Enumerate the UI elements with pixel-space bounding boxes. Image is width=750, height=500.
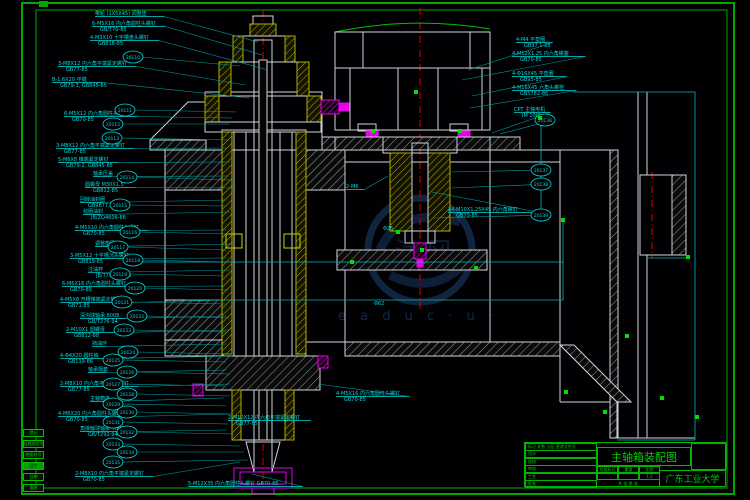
svg-text:毡圈油封: 毡圈油封 bbox=[83, 208, 103, 215]
annotation-label[interactable]: 注油杯JB/T7940.1-95 bbox=[88, 266, 230, 279]
svg-text:20129: 20129 bbox=[106, 402, 120, 408]
counter-shaft-assembly[interactable] bbox=[383, 137, 457, 267]
motor-outline[interactable] bbox=[322, 23, 520, 150]
grip-point[interactable] bbox=[458, 129, 462, 133]
svg-text:圆螺母 M30X1.5: 圆螺母 M30X1.5 bbox=[85, 181, 124, 188]
annotation-layer[interactable]: 带轮 (1X5X45) 调整垫6-M5X16 内六角圆柱头螺钉GB/T70-85… bbox=[52, 10, 699, 487]
svg-text:4-M16X45 六角头螺栓: 4-M16X45 六角头螺栓 bbox=[512, 84, 564, 91]
svg-text:GB70-85: GB70-85 bbox=[70, 287, 92, 293]
svg-text:挡油环: 挡油环 bbox=[92, 340, 107, 347]
svg-text:20113: 20113 bbox=[105, 136, 119, 142]
annotation-label[interactable]: 轴承隔套 bbox=[88, 366, 226, 373]
svg-text:4-M3X10 十字槽盘头螺钉: 4-M3X10 十字槽盘头螺钉 bbox=[90, 34, 149, 41]
part-balloon[interactable]: 20134 bbox=[117, 446, 244, 458]
grip-point[interactable] bbox=[660, 396, 664, 400]
svg-text:20110: 20110 bbox=[126, 55, 140, 61]
drawing-title: 主轴箱装配图 bbox=[597, 447, 691, 466]
svg-text:20119: 20119 bbox=[113, 272, 127, 278]
dimension-text: Φ25 bbox=[383, 226, 393, 232]
stage-header-cell: 阶段标记 bbox=[597, 466, 618, 473]
svg-text:GB70-85: GB70-85 bbox=[456, 213, 478, 219]
svg-text:20118: 20118 bbox=[126, 258, 140, 264]
annotation-label[interactable]: 2-M6 bbox=[346, 176, 388, 190]
annotation-label[interactable]: 回转油封圈GB9877.1-88 bbox=[80, 196, 226, 209]
svg-text:20114: 20114 bbox=[120, 175, 134, 181]
part-balloon[interactable]: 20115 bbox=[110, 199, 226, 211]
svg-text:4-M4 平垫圈: 4-M4 平垫圈 bbox=[516, 36, 545, 43]
svg-text:20138: 20138 bbox=[534, 182, 548, 188]
svg-text:20121: 20121 bbox=[115, 300, 129, 306]
grip-point[interactable] bbox=[396, 230, 400, 234]
svg-text:GB77-85: GB77-85 bbox=[64, 149, 86, 155]
part-balloon[interactable]: 20132 bbox=[117, 426, 234, 438]
svg-text:GB97.1-85: GB97.1-85 bbox=[524, 43, 551, 49]
svg-text:20112: 20112 bbox=[106, 122, 120, 128]
part-balloon[interactable]: 20130 bbox=[117, 406, 232, 418]
svg-text:20123: 20123 bbox=[117, 328, 131, 334]
annotation-label[interactable]: 4-M16X45 六角头螺栓GB5782-86 bbox=[470, 84, 576, 108]
svg-text:6-M5X16 内六角圆柱头螺钉: 6-M5X16 内六角圆柱头螺钉 bbox=[92, 20, 156, 27]
svg-text:GB818-85: GB818-85 bbox=[98, 41, 123, 47]
svg-text:20122: 20122 bbox=[130, 314, 144, 320]
svg-text:带轮 (1X5X45) 调整垫: 带轮 (1X5X45) 调整垫 bbox=[95, 10, 147, 17]
svg-text:2-M10X1 圆螺母: 2-M10X1 圆螺母 bbox=[66, 326, 105, 333]
svg-text:20111: 20111 bbox=[118, 108, 132, 114]
annotation-label[interactable]: 毡圈油封JB/ZQ4606-86 bbox=[83, 208, 230, 221]
svg-text:GB119-86: GB119-86 bbox=[68, 359, 93, 365]
stage-header-cell: 重量 bbox=[618, 466, 639, 473]
grip-point[interactable] bbox=[686, 255, 690, 259]
svg-text:20132: 20132 bbox=[120, 430, 134, 436]
svg-text:GB/T292-94: GB/T292-94 bbox=[88, 432, 118, 438]
part-balloon[interactable]: 20118 bbox=[123, 254, 230, 266]
grip-point[interactable] bbox=[603, 410, 607, 414]
svg-text:6-M6X16 内六角圆柱头螺钉: 6-M6X16 内六角圆柱头螺钉 bbox=[62, 280, 126, 287]
svg-text:GB812-88: GB812-88 bbox=[74, 333, 99, 339]
svg-text:20127: 20127 bbox=[106, 382, 120, 388]
margin-stamp: 旧底图总号 bbox=[23, 440, 44, 448]
sheet-count: 共 张 第 张 bbox=[597, 479, 659, 488]
svg-text:GB70-85: GB70-85 bbox=[520, 57, 542, 63]
svg-text:20137: 20137 bbox=[534, 168, 548, 174]
svg-text:20130: 20130 bbox=[120, 410, 134, 416]
organization-name: 广东工业大学 bbox=[659, 470, 726, 487]
svg-text:注油杯: 注油杯 bbox=[88, 266, 103, 273]
svg-text:20120: 20120 bbox=[128, 286, 142, 292]
svg-text:4-Φ16X45 平垫圈: 4-Φ16X45 平垫圈 bbox=[512, 70, 554, 77]
part-balloon[interactable]: 20137 bbox=[452, 164, 551, 176]
title-block-row: 批准 bbox=[525, 480, 597, 488]
grip-point[interactable] bbox=[625, 334, 629, 338]
grip-point[interactable] bbox=[538, 116, 542, 120]
annotation-label[interactable]: 4-M5X10 内六角圆柱头螺钉GB70-85 bbox=[75, 224, 226, 237]
svg-text:GB812-85: GB812-85 bbox=[93, 188, 118, 194]
svg-text:20128: 20128 bbox=[120, 392, 134, 398]
svg-text:20116: 20116 bbox=[123, 230, 137, 236]
svg-text:GB71-85: GB71-85 bbox=[68, 303, 90, 309]
svg-text:20139: 20139 bbox=[534, 213, 548, 219]
svg-text:轴承压盖: 轴承压盖 bbox=[93, 170, 113, 177]
grip-point[interactable] bbox=[371, 129, 375, 133]
svg-text:GB70-85: GB70-85 bbox=[83, 231, 105, 237]
part-balloon[interactable]: 20116 bbox=[120, 226, 228, 238]
margin-stamp: 登记 bbox=[23, 429, 44, 437]
svg-text:GB/T70-85: GB/T70-85 bbox=[100, 27, 127, 33]
margin-stamp: 描图 bbox=[23, 484, 44, 492]
annotation-label[interactable]: 角接触球轴承 7008CGB/T292-94 bbox=[80, 425, 226, 438]
svg-text:GB5782-86: GB5782-86 bbox=[520, 91, 548, 97]
svg-text:24-M10X1.25X45 内六角螺钉: 24-M10X1.25X45 内六角螺钉 bbox=[448, 206, 518, 213]
svg-text:2-M6: 2-M6 bbox=[346, 184, 358, 190]
grip-point[interactable] bbox=[414, 90, 418, 94]
annotation-label[interactable]: 4-M5X16 内六角圆柱头螺钉GB70-85 bbox=[318, 384, 410, 403]
svg-text:GB70-85: GB70-85 bbox=[72, 117, 94, 123]
svg-text:20134: 20134 bbox=[120, 450, 134, 456]
spindle-assembly[interactable] bbox=[193, 16, 349, 494]
centerlines[interactable] bbox=[263, 8, 652, 486]
svg-text:20125: 20125 bbox=[106, 358, 120, 364]
machine-column[interactable] bbox=[490, 92, 695, 438]
svg-text:4-M5X8 开槽锥端紧定螺钉: 4-M5X8 开槽锥端紧定螺钉 bbox=[60, 296, 121, 303]
svg-text:轴承隔套: 轴承隔套 bbox=[88, 366, 108, 373]
svg-text:JB/ZQ4606-86: JB/ZQ4606-86 bbox=[90, 215, 126, 221]
svg-text:回转油封圈: 回转油封圈 bbox=[80, 196, 105, 203]
svg-text:5-M6X8 锥端紧定螺钉: 5-M6X8 锥端紧定螺钉 bbox=[58, 156, 109, 163]
grip-point[interactable] bbox=[420, 248, 424, 252]
svg-text:GB/T276-94: GB/T276-94 bbox=[88, 319, 118, 325]
svg-text:B-1.6X20 平键: B-1.6X20 平键 bbox=[52, 76, 87, 83]
part-balloon[interactable]: 20119 bbox=[110, 268, 224, 280]
annotation-label[interactable]: 2-M10X12 内六角平端紧定螺钉GB77-85 bbox=[228, 414, 311, 427]
grip-point[interactable] bbox=[474, 266, 478, 270]
svg-text:GB819-85: GB819-85 bbox=[78, 259, 103, 265]
stage-header-cell: 比例 bbox=[639, 466, 660, 473]
svg-text:5-M12X35 内六角圆柱头螺钉 GB70-85: 5-M12X35 内六角圆柱头螺钉 GB70-85 bbox=[188, 480, 278, 487]
svg-text:GB77-85: GB77-85 bbox=[236, 421, 258, 427]
svg-text:GB77-85: GB77-85 bbox=[66, 67, 88, 73]
svg-text:20131: 20131 bbox=[106, 420, 120, 426]
svg-text:3-M8X12 内六角平端紧定螺钉: 3-M8X12 内六角平端紧定螺钉 bbox=[58, 60, 127, 67]
grip-point[interactable] bbox=[564, 390, 568, 394]
drawing-number-cell bbox=[691, 443, 727, 470]
svg-text:20126: 20126 bbox=[120, 370, 134, 376]
svg-text:20117: 20117 bbox=[111, 245, 125, 251]
svg-text:2-M10X12 内六角平端紧定螺钉: 2-M10X12 内六角平端紧定螺钉 bbox=[228, 414, 300, 421]
svg-text:GB70-85: GB70-85 bbox=[83, 477, 105, 483]
part-balloon[interactable]: 20120 bbox=[125, 282, 228, 294]
svg-text:GB70-85: GB70-85 bbox=[344, 397, 366, 403]
svg-text:20115: 20115 bbox=[113, 203, 127, 209]
margin-stamp: 日期 bbox=[23, 473, 44, 481]
margin-stamp: 底图总号 bbox=[23, 451, 44, 459]
grip-point[interactable] bbox=[561, 218, 565, 222]
part-balloon[interactable]: 20138 bbox=[452, 178, 551, 190]
svg-text:GB79-2, GB845-85: GB79-2, GB845-85 bbox=[66, 163, 113, 169]
svg-text:4-Φ4X20 圆柱销: 4-Φ4X20 圆柱销 bbox=[60, 352, 98, 359]
svg-text:GB79-3, GB845-85: GB79-3, GB845-85 bbox=[60, 83, 107, 89]
svg-text:GB70-85: GB70-85 bbox=[66, 417, 88, 423]
svg-text:20124: 20124 bbox=[121, 350, 135, 356]
svg-text:CPT 主轴电机: CPT 主轴电机 bbox=[514, 106, 545, 113]
annotation-label[interactable]: 3-M5X12 十字槽沉头螺钉GB819-85 bbox=[70, 252, 226, 265]
svg-text:4-M12X1.25 内六角螺塞: 4-M12X1.25 内六角螺塞 bbox=[512, 50, 569, 57]
grip-point[interactable] bbox=[695, 415, 699, 419]
annotation-label[interactable]: 2-M8X10 内六角平端紧定螺钉GB77-85 bbox=[60, 380, 230, 393]
part-balloon[interactable]: 20117 bbox=[108, 241, 226, 253]
svg-text:20135: 20135 bbox=[106, 460, 120, 466]
drawing-canvas[interactable]: 带轮 (1X5X45) 调整垫6-M5X16 内六角圆柱头螺钉GB/T70-85… bbox=[0, 0, 750, 500]
svg-text:20133: 20133 bbox=[106, 442, 120, 448]
dimension-text: Φ62 bbox=[374, 301, 384, 307]
svg-text:2-M8X10 内六角平端紧定螺钉: 2-M8X10 内六角平端紧定螺钉 bbox=[75, 470, 144, 477]
margin-stamp: 签字 bbox=[23, 462, 44, 470]
title-block: 主轴箱装配图 广东工业大学 标记 处数 分区 更改文件号设计校核审核工艺批准 阶… bbox=[524, 442, 726, 487]
revision-table: 标记 处数 分区 更改文件号设计校核审核工艺批准 bbox=[525, 443, 597, 488]
svg-text:深沟球轴承 6008: 深沟球轴承 6008 bbox=[80, 312, 119, 319]
cad-drawing-viewport: 沐风 e a d u c · u · bbox=[0, 0, 750, 500]
drawing-border-frame bbox=[22, 1, 734, 494]
grip-point[interactable] bbox=[350, 260, 354, 264]
svg-text:GB77-85: GB77-85 bbox=[68, 387, 90, 393]
